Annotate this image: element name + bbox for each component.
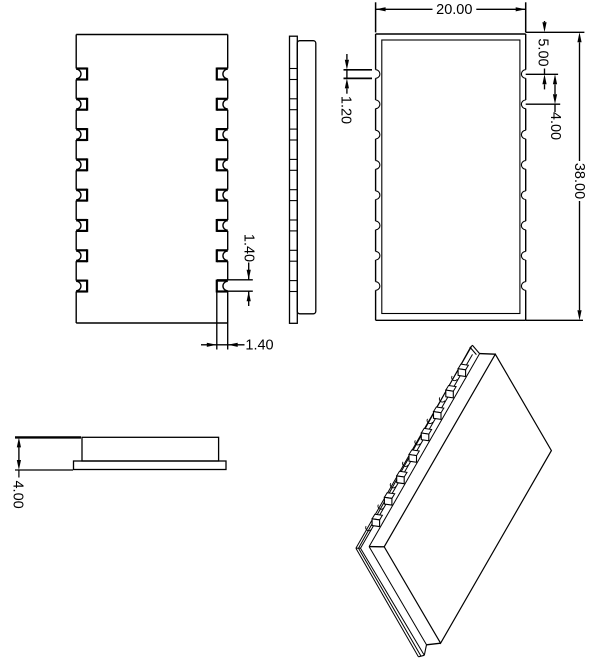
svg-text:1.20: 1.20 (338, 96, 354, 124)
svg-text:4.00: 4.00 (10, 480, 26, 508)
svg-text:1.40: 1.40 (245, 337, 273, 353)
svg-text:1.40: 1.40 (241, 234, 257, 262)
svg-text:5.00: 5.00 (534, 38, 550, 66)
svg-text:4.00: 4.00 (547, 112, 563, 140)
svg-text:20.00: 20.00 (436, 2, 472, 18)
svg-text:38.00: 38.00 (571, 163, 587, 199)
